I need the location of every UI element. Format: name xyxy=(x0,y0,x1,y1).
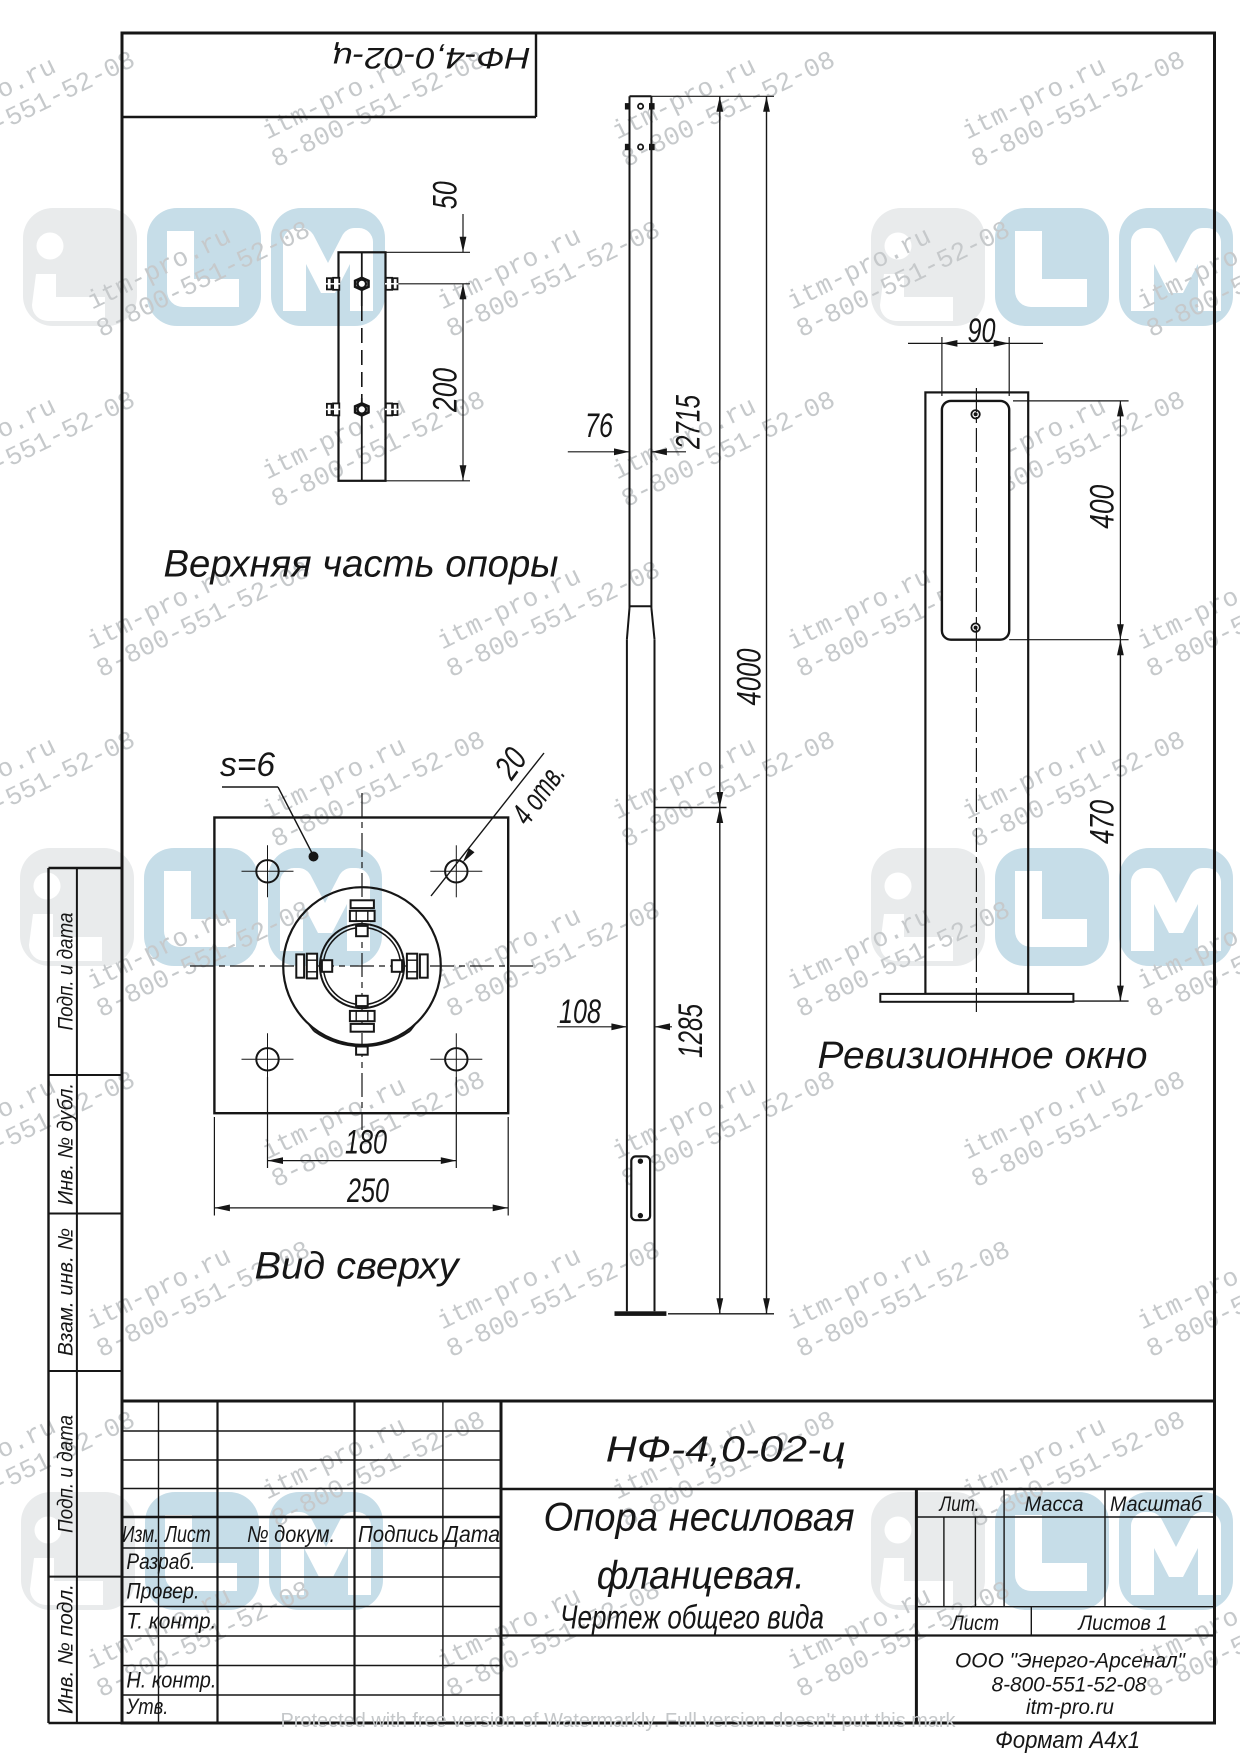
svg-text:Подпись: Подпись xyxy=(358,1521,439,1547)
svg-text:4000: 4000 xyxy=(731,648,769,705)
svg-text:Опора несиловая: Опора несиловая xyxy=(544,1495,855,1539)
svg-text:itm-pro.ru: itm-pro.ru xyxy=(1026,1695,1114,1719)
svg-text:Масса: Масса xyxy=(1025,1493,1084,1516)
svg-text:Листов 1: Листов 1 xyxy=(1077,1612,1168,1635)
svg-text:Подп. и дата: Подп. и дата xyxy=(55,1415,78,1533)
svg-text:250: 250 xyxy=(346,1172,389,1210)
svg-text:76: 76 xyxy=(585,407,613,445)
svg-text:№ докум.: № докум. xyxy=(247,1521,335,1547)
svg-text:2715: 2715 xyxy=(670,395,708,450)
svg-text:180: 180 xyxy=(345,1124,387,1162)
svg-text:50: 50 xyxy=(427,181,465,209)
svg-text:Protected with free version of: Protected with free version of Watermark… xyxy=(281,1710,957,1732)
svg-text:Вид сверху: Вид сверху xyxy=(255,1246,461,1288)
svg-text:Лит.: Лит. xyxy=(938,1493,980,1516)
svg-text:400: 400 xyxy=(1084,485,1122,529)
svg-text:Провер.: Провер. xyxy=(126,1579,199,1604)
svg-text:Лист: Лист xyxy=(163,1521,211,1547)
svg-text:470: 470 xyxy=(1084,800,1122,844)
svg-text:Инв. № дубл.: Инв. № дубл. xyxy=(55,1083,78,1205)
svg-text:Инв. № подл.: Инв. № подл. xyxy=(55,1584,78,1714)
svg-text:Взам. инв. №: Взам. инв. № xyxy=(55,1228,78,1356)
svg-text:Н. контр.: Н. контр. xyxy=(126,1668,216,1693)
svg-text:Т. контр.: Т. контр. xyxy=(126,1609,216,1634)
svg-text:фланцевая.: фланцевая. xyxy=(597,1554,805,1598)
svg-text:1285: 1285 xyxy=(672,1004,710,1058)
svg-text:Утв.: Утв. xyxy=(126,1694,169,1719)
svg-text:Верхняя часть опоры: Верхняя часть опоры xyxy=(164,544,559,586)
svg-text:Разраб.: Разраб. xyxy=(126,1549,195,1574)
svg-text:ООО "Энерго-Арсенал": ООО "Энерго-Арсенал" xyxy=(955,1648,1186,1672)
svg-text:Формат А4х1: Формат А4х1 xyxy=(995,1727,1140,1754)
svg-text:НФ-4,0-02-ц: НФ-4,0-02-ц xyxy=(606,1428,846,1469)
svg-text:Лист: Лист xyxy=(949,1612,999,1635)
svg-text:Подп. и дата: Подп. и дата xyxy=(55,913,78,1031)
svg-text:Ревизионное окно: Ревизионное окно xyxy=(818,1035,1148,1077)
svg-text:Масштаб: Масштаб xyxy=(1110,1493,1203,1516)
svg-text:s=6: s=6 xyxy=(220,746,275,784)
svg-text:НФ-4,0-02-ц: НФ-4,0-02-ц xyxy=(333,41,531,74)
svg-text:Дата: Дата xyxy=(441,1521,500,1547)
svg-text:8-800-551-52-08: 8-800-551-52-08 xyxy=(992,1673,1147,1697)
svg-text:Чертеж общего вида: Чертеж общего вида xyxy=(560,1599,824,1636)
svg-text:108: 108 xyxy=(559,993,601,1031)
svg-text:90: 90 xyxy=(968,312,996,350)
svg-text:Изм.: Изм. xyxy=(122,1521,159,1547)
svg-text:200: 200 xyxy=(427,368,465,413)
